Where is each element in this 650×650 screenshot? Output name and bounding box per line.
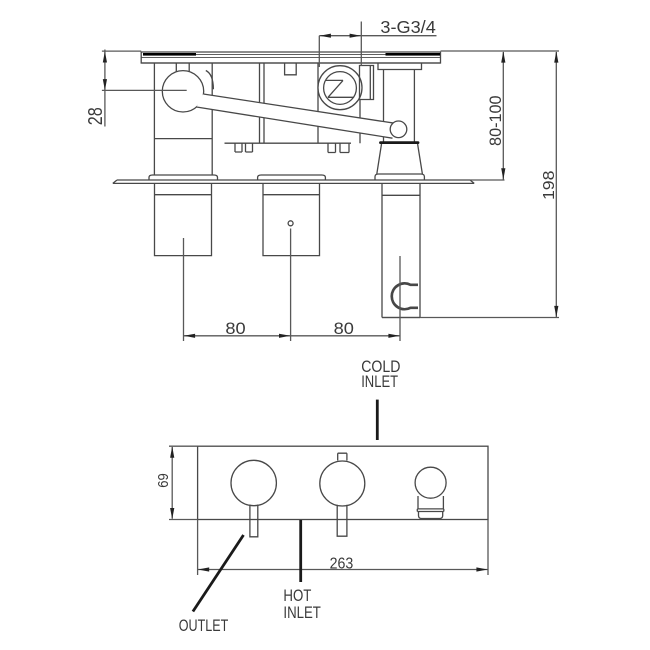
svg-text:80: 80 [225, 319, 245, 338]
svg-text:HOT: HOT [283, 586, 311, 605]
svg-text:263: 263 [330, 555, 354, 572]
svg-text:OUTLET: OUTLET [179, 616, 229, 635]
svg-text:3-G3/4: 3-G3/4 [380, 17, 436, 37]
svg-text:28: 28 [85, 107, 107, 125]
svg-text:80: 80 [334, 319, 354, 338]
svg-text:INLET: INLET [283, 603, 321, 622]
svg-text:80-100: 80-100 [487, 95, 505, 146]
svg-text:198: 198 [541, 170, 558, 200]
svg-text:INLET: INLET [361, 372, 398, 391]
svg-text:69: 69 [156, 473, 172, 488]
